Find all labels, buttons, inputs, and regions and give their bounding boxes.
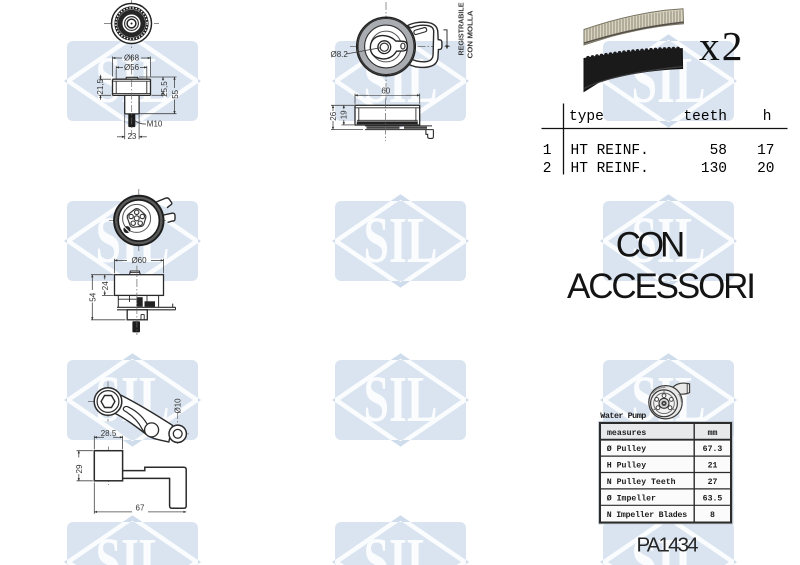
svg-text:26: 26 (329, 111, 338, 120)
svg-text:ACCESSORI: ACCESSORI (567, 267, 756, 306)
svg-text:28.5: 28.5 (101, 429, 117, 438)
svg-text:21: 21 (708, 462, 718, 471)
svg-text:N Pulley Teeth: N Pulley Teeth (607, 477, 676, 487)
svg-text:Water Pump: Water Pump (600, 411, 646, 421)
svg-text:Ø60: Ø60 (131, 256, 147, 265)
svg-text:20: 20 (757, 161, 774, 177)
svg-text:h: h (763, 109, 772, 125)
svg-text:21,5: 21,5 (96, 78, 105, 94)
svg-text:23: 23 (127, 132, 136, 141)
svg-text:17: 17 (757, 143, 774, 159)
svg-text:x 2: x 2 (699, 23, 743, 69)
svg-text:HT REINF.: HT REINF. (571, 161, 649, 177)
svg-text:measures: measures (607, 429, 646, 438)
svg-text:Ø56: Ø56 (124, 63, 140, 72)
svg-text:55: 55 (171, 89, 180, 98)
svg-text:130: 130 (701, 161, 727, 177)
svg-text:PA1434: PA1434 (637, 533, 699, 556)
svg-text:Ø Pulley: Ø Pulley (607, 444, 646, 454)
svg-text:63.5: 63.5 (703, 494, 723, 503)
svg-text:Ø Impeller: Ø Impeller (607, 493, 656, 503)
svg-text:CON MOLLA: CON MOLLA (465, 10, 474, 59)
svg-text:1: 1 (543, 143, 552, 159)
svg-text:24: 24 (101, 281, 110, 290)
svg-text:HT REINF.: HT REINF. (571, 143, 649, 159)
svg-text:8: 8 (710, 511, 715, 520)
svg-text:60: 60 (381, 87, 390, 96)
svg-text:type: type (569, 109, 604, 125)
svg-text:2: 2 (543, 161, 552, 177)
svg-text:19: 19 (340, 110, 349, 119)
svg-text:N Impeller Blades: N Impeller Blades (607, 510, 687, 520)
svg-text:Ø10: Ø10 (174, 398, 183, 414)
svg-text:67: 67 (136, 503, 145, 512)
svg-text:54: 54 (89, 292, 98, 301)
svg-text:58: 58 (710, 143, 727, 159)
svg-text:25,5: 25,5 (160, 81, 169, 97)
svg-text:REGISTRABILE: REGISTRABILE (457, 3, 466, 56)
svg-text:Ø68: Ø68 (124, 54, 140, 63)
svg-text:27: 27 (708, 478, 718, 487)
svg-text:teeth: teeth (683, 109, 727, 125)
svg-text:67.3: 67.3 (703, 445, 723, 454)
svg-text:mm: mm (708, 429, 718, 438)
svg-text:CON: CON (616, 226, 686, 265)
svg-text:Ø8.2: Ø8.2 (331, 50, 349, 59)
svg-text:29: 29 (75, 464, 84, 473)
svg-text:M10: M10 (147, 119, 163, 128)
svg-text:H Pulley: H Pulley (607, 461, 646, 471)
